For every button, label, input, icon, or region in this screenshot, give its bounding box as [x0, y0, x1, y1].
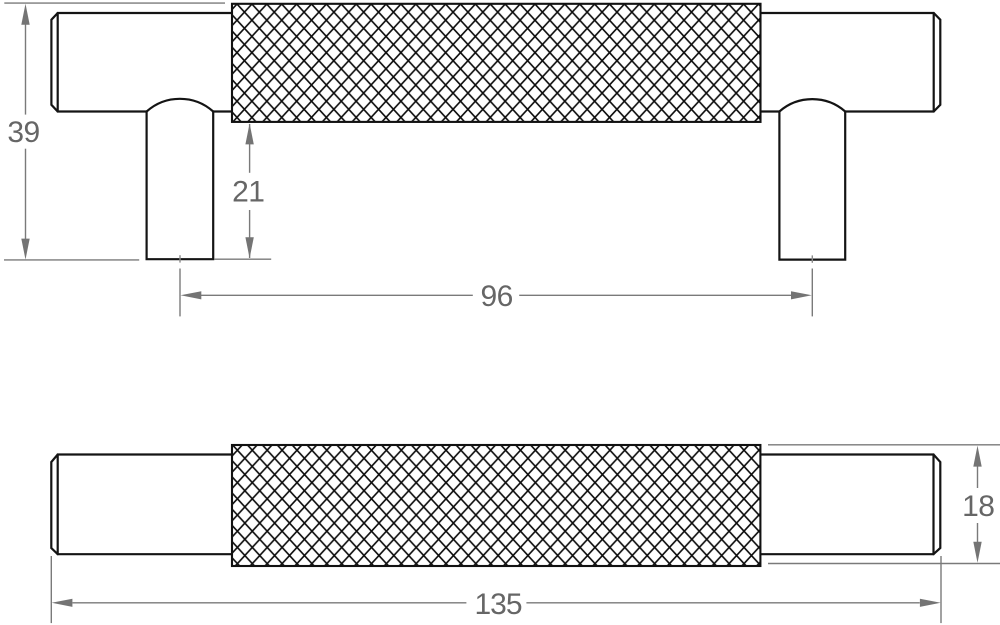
svg-text:96: 96	[481, 280, 513, 313]
svg-text:18: 18	[962, 490, 994, 523]
svg-text:21: 21	[232, 176, 264, 209]
svg-text:39: 39	[7, 116, 39, 149]
svg-text:135: 135	[474, 588, 521, 621]
